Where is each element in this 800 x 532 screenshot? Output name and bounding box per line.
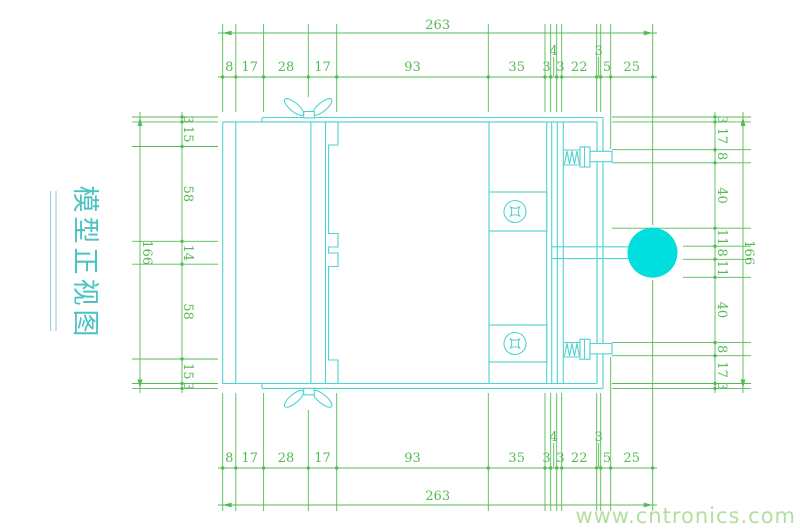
dim-top-seg-4: 93 (404, 60, 421, 75)
wing-nut-body (304, 388, 315, 394)
dim-left-seg-3: 14 (180, 245, 195, 262)
dim-right-seg-6: 11 (714, 260, 729, 277)
screw-circle (504, 333, 526, 355)
tick-dot (555, 75, 558, 78)
wing-petal (282, 96, 306, 118)
dim-left-seg-0: 3 (180, 115, 195, 123)
tick-dot (180, 145, 183, 148)
dim-right-seg-5: 8 (714, 249, 729, 257)
tick-dot (221, 466, 224, 469)
tick-dot (180, 357, 183, 360)
tick-dot (549, 466, 552, 469)
tick-dot (651, 75, 654, 78)
dim-bottom-seg-9: 22 (571, 451, 588, 466)
dim-bottom-seg-7: 4 (550, 430, 558, 445)
tick-dot (560, 75, 563, 78)
dim-bottom-seg-6: 3 (542, 451, 550, 466)
tick-dot (609, 466, 612, 469)
dim-bottom-seg-0: 8 (225, 451, 233, 466)
dim-right-seg-8: 8 (714, 345, 729, 353)
tick-dot (307, 75, 310, 78)
tick-dot (307, 466, 310, 469)
dim-left-seg-2: 58 (180, 186, 195, 203)
notched-parting-line (329, 122, 338, 384)
tick-dot (335, 466, 338, 469)
tick-dot (221, 75, 224, 78)
cad-drawing-canvas: 模型正视图 263 8 17 28 17 93 35 3 4 3 22 3 5 … (0, 0, 800, 532)
tick-dot (599, 75, 602, 78)
dim-bottom-seg-8: 3 (556, 451, 564, 466)
dim-top-seg-7: 4 (550, 44, 558, 59)
bottom-wing-nut (282, 388, 334, 410)
tick-dot (262, 75, 265, 78)
tick-dot (713, 341, 716, 344)
dim-bottom-seg-5: 35 (508, 451, 525, 466)
tick-dot (595, 75, 598, 78)
upper-bolt (563, 147, 612, 167)
dim-top-seg-12: 25 (623, 60, 640, 75)
tick-dot (713, 148, 716, 151)
tick-dot (335, 75, 338, 78)
wing-petal (282, 388, 306, 410)
dim-right-seg-10: 3 (714, 382, 729, 390)
dim-top-seg-8: 3 (556, 60, 564, 75)
dim-left-seg-6: 3 (180, 382, 195, 390)
dim-right-seg-7: 40 (714, 302, 729, 319)
dim-left-overall: 166 (139, 240, 154, 265)
watermark-text: www.cntronics.com (575, 504, 796, 528)
arrow-icon (644, 31, 653, 36)
drawing-title: 模型正视图 (69, 186, 100, 341)
dim-top-seg-10: 3 (595, 44, 603, 59)
dim-right-seg-4: 11 (714, 229, 729, 246)
dim-left-seg-5: 15 (180, 363, 195, 380)
dim-top-seg-3: 17 (314, 60, 331, 75)
bolt-shaft (590, 344, 612, 354)
dim-bottom-seg-11: 5 (603, 451, 611, 466)
dim-top-seg-11: 5 (603, 60, 611, 75)
tick-dot (543, 75, 546, 78)
dim-bottom-seg-1: 17 (241, 451, 258, 466)
dim-top-overall: 263 (425, 18, 450, 33)
tick-dot (180, 263, 183, 266)
dim-bottom-seg-3: 17 (314, 451, 331, 466)
upper-screw-plate (489, 192, 547, 231)
screw-circle (504, 201, 526, 223)
dim-right-seg-3: 40 (714, 187, 729, 204)
dim-top-seg-6: 3 (542, 60, 550, 75)
top-plate (223, 118, 603, 122)
title-label: 模型正视图 (51, 186, 101, 341)
dim-top-seg-1: 17 (241, 60, 258, 75)
tick-dot (543, 466, 546, 469)
knob (628, 228, 678, 278)
dim-left-seg-4: 58 (180, 303, 195, 320)
dim-top-seg-0: 8 (225, 60, 233, 75)
dim-top-seg-9: 22 (571, 60, 588, 75)
dim-bottom-seg-10: 3 (595, 430, 603, 445)
dim-right-seg-0: 3 (714, 115, 729, 123)
dim-bottom-seg-4: 93 (404, 451, 421, 466)
lower-bolt (563, 339, 612, 359)
dim-bottom-overall: 263 (425, 489, 450, 504)
dim-right-seg-2: 8 (714, 152, 729, 160)
spring-coil (563, 343, 580, 357)
bottom-plate (223, 384, 603, 389)
dim-right-overall: 166 (741, 240, 756, 265)
middle-plate-lines (311, 122, 326, 384)
tick-dot (599, 466, 602, 469)
dim-top-seg-5: 35 (508, 60, 525, 75)
tick-dot (234, 75, 237, 78)
tick-dot (487, 75, 490, 78)
bolt-shaft (590, 151, 612, 161)
tick-dot (487, 466, 490, 469)
tick-dots (180, 75, 716, 469)
tick-dot (180, 240, 183, 243)
tick-dot (234, 466, 237, 469)
dim-left-seg-1: 15 (180, 126, 195, 143)
arrow-icon (223, 31, 232, 36)
left-wall (223, 122, 236, 384)
dim-right-seg-1: 17 (714, 128, 729, 145)
tick-dot (713, 161, 716, 164)
arrow-icon (223, 503, 232, 508)
dim-right-seg-9: 17 (714, 361, 729, 378)
tick-dot (713, 354, 716, 357)
dim-top-seg-2: 28 (278, 60, 295, 75)
lower-screw-plate (489, 325, 547, 362)
dim-bottom-seg-12: 25 (623, 451, 640, 466)
dim-bottom-seg-2: 28 (278, 451, 295, 466)
tick-dot (609, 75, 612, 78)
tick-dot (595, 466, 598, 469)
mold-drawing (223, 96, 678, 410)
tick-dot (651, 466, 654, 469)
tick-dot (549, 75, 552, 78)
top-wing-nut (282, 96, 334, 118)
cad-svg: 模型正视图 263 8 17 28 17 93 35 3 4 3 22 3 5 … (0, 0, 800, 532)
wing-nut-body (304, 112, 315, 118)
tick-dot (262, 466, 265, 469)
tick-dot (555, 466, 558, 469)
tick-dot (560, 466, 563, 469)
spring-coil (563, 150, 580, 165)
